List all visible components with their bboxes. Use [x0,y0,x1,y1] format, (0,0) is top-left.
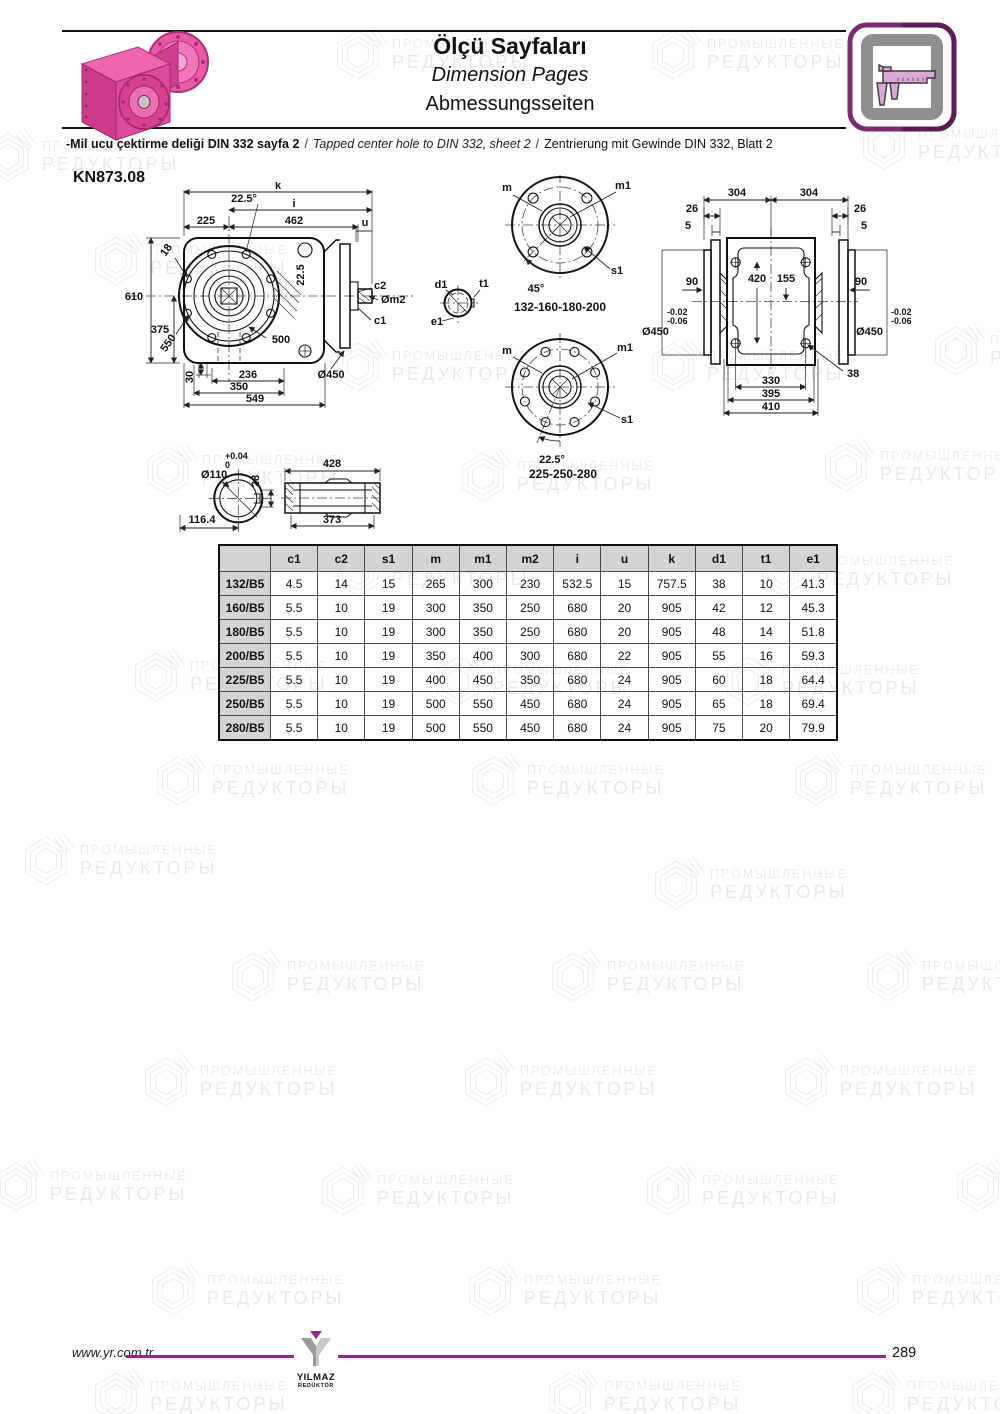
watermark: ПРОМЫШЛЕННЫЕРЕДУКТОРЫ [462,1262,662,1320]
table-cell: 45.3 [790,596,837,620]
flange-views-drawing: m m1 s1 45° 132-160-180-200 d1 t1 e1 [420,175,670,487]
label-m: m [502,345,512,357]
dim-450-right: Ø450 [856,326,883,338]
table-cell: 350 [459,596,506,620]
watermark-hexagon-icon [88,1368,144,1414]
watermark: ПРОМЫШЛЕННЫЕРЕДУКТОРЫ [818,438,1000,496]
watermark-line2: РЕДУКТОРЫ [207,1288,345,1309]
watermark-line1: ПРОМЫШЛЕННЫЕ [150,1379,288,1393]
label-m1: m1 [617,342,633,354]
gearbox-photo [58,22,218,150]
dim-i: i [292,198,295,210]
table-cell: 16 [743,644,790,668]
watermark-text: ПРОМЫШЛЕННЫЕРЕДУКТОРЫ [527,763,665,798]
table-cell: 680 [554,716,601,741]
watermark-line1: ПРОМЫШЛЕННЫЕ [520,1064,658,1078]
dim-28: 28 [250,475,262,487]
note-turkish: -Mil ucu çektirme deliği DIN 332 sayfa 2 [66,137,299,151]
column-header: s1 [365,545,412,572]
watermark-text: ПРОМЫШЛЕННЫЕРЕДУКТОРЫ [880,449,1000,484]
note-english: Tapped center hole to DIN 332, sheet 2 [313,137,531,151]
watermark-line2: РЕДУКТОРЫ [212,778,350,799]
table-cell: 19 [365,644,412,668]
table-cell: 905 [648,596,695,620]
column-header: i [554,545,601,572]
watermark-text: ПРОМЫШЛЕННЫЕРЕДУКТОРЫ [212,763,350,798]
column-header: d1 [695,545,742,572]
flange-caption-large: 225-250-280 [529,467,597,481]
watermark-text: ПРОМЫШЛЕННЫЕРЕДУКТОРЫ [710,867,848,902]
column-header: t1 [743,545,790,572]
page-number: 289 [892,1345,916,1361]
watermark-text: ПРОМЫШЛЕННЫЕРЕДУКТОРЫ [922,959,1000,994]
watermark-hexagon-icon [0,1158,44,1216]
table-cell: 60 [695,668,742,692]
watermark-text: ПРОМЫШЛЕННЫЕРЕДУКТОРЫ [912,1273,1000,1308]
watermark-hexagon-icon [0,128,36,186]
row-label: 180/B5 [219,620,271,644]
table-cell: 55 [695,644,742,668]
watermark-line1: ПРОМЫШЛЕННЫЕ [710,867,848,881]
tolerance-lower-left: -0.06 [667,316,688,326]
table-cell: 79.9 [790,716,837,741]
column-header: m2 [507,545,554,572]
yilmaz-logo-icon [297,1330,335,1368]
logo-subtitle: REDÜKTÖR [294,1383,338,1390]
table-cell: 5.5 [271,644,318,668]
watermark: ПРОМЫШЛЕННЫЕРЕДУКТОРЫ [778,1053,978,1111]
watermark-text: ПРОМЫШЛЕННЫЕРЕДУКТОРЫ [990,333,1000,368]
watermark-text: ПРОМЫШЛЕННЫЕРЕДУКТОРЫ [287,959,425,994]
watermark-hexagon-icon [845,1368,901,1414]
table-cell: 300 [412,620,459,644]
column-header: c2 [318,545,365,572]
watermark-text: ПРОМЫШЛЕННЫЕРЕДУКТОРЫ [607,959,745,994]
table-cell: 5.5 [271,716,318,741]
dim-k: k [275,182,282,192]
watermark-line2: РЕДУКТОРЫ [918,142,1000,163]
watermark: ПРОМЫШЛЕННЫЕРЕДУКТОРЫ [542,1368,742,1414]
flange-caption-small: 132-160-180-200 [514,300,606,314]
dim-395: 395 [762,388,780,400]
watermark-text: ПРОМЫШЛЕННЫЕРЕДУКТОРЫ [207,1273,345,1308]
table-cell: 14 [743,620,790,644]
table-cell: 265 [412,572,459,596]
label-t1: t1 [479,278,489,290]
watermark-line1: ПРОМЫШЛЕННЫЕ [287,959,425,973]
table-cell: 64.4 [790,668,837,692]
dim-450: Ø450 [318,369,345,381]
row-label: 280/B5 [219,716,271,741]
table-cell: 22 [601,644,648,668]
dim-c2: c2 [374,280,386,292]
table-cell: 5.5 [271,596,318,620]
watermark-line2: РЕДУКТОРЫ [520,1079,658,1100]
watermark-hexagon-icon [850,1262,906,1320]
dim-330: 330 [762,375,780,387]
watermark-line1: ПРОМЫШЛЕННЫЕ [840,1064,978,1078]
table-cell: 5.5 [271,668,318,692]
label-s1: s1 [611,265,623,277]
dim-38: 38 [847,368,859,380]
table-cell: 10 [743,572,790,596]
dim-373: 373 [323,514,341,526]
table-cell: 532.5 [554,572,601,596]
table-cell: 400 [412,668,459,692]
table-cell: 42 [695,596,742,620]
watermark-line2: РЕДУКТОРЫ [702,1188,840,1209]
note-separator: / [536,137,539,151]
label-m: m [502,182,512,194]
table-cell: 350 [459,620,506,644]
watermark-hexagon-icon [542,1368,598,1414]
page-title: Ölçü Sayfaları Dimension Pages Abmessung… [250,33,770,116]
watermark-text: ПРОМЫШЛЕННЫЕРЕДУКТОРЫ [604,1379,742,1414]
table-corner-cell [219,545,271,572]
table-cell: 350 [412,644,459,668]
table-cell: 75 [695,716,742,741]
watermark: ПРОМЫШЛЕННЫЕРЕДУКТОРЫ [145,1262,345,1320]
watermark-line2: РЕДУКТОРЫ [912,1288,1000,1309]
dim-304-left: 304 [728,187,747,199]
dim-450-left: Ø450 [642,326,669,338]
label-45deg: 45° [528,283,545,295]
watermark-text: ПРОМЫШЛЕННЫЕРЕДУКТОРЫ [520,1064,658,1099]
dimensions-table: c1c2s1mm1m2iukd1t1e1 132/B54.51415265300… [218,544,838,741]
table-cell: 450 [507,692,554,716]
table-cell: 59.3 [790,644,837,668]
column-header: k [648,545,695,572]
watermark-hexagon-icon [545,948,601,1006]
column-header: c1 [271,545,318,572]
watermark-hexagon-icon [462,1262,518,1320]
title-english: Dimension Pages [250,63,770,87]
table-cell: 41.3 [790,572,837,596]
logo-name: YILMAZ [294,1373,338,1383]
watermark-line1: ПРОМЫШЛЕННЫЕ [604,1379,742,1393]
watermark-text: ПРОМЫШЛЕННЫЕРЕДУКТОРЫ [840,1064,978,1099]
table-cell: 10 [318,644,365,668]
watermark-hexagon-icon [18,832,74,890]
watermark-line1: ПРОМЫШЛЕННЫЕ [524,1273,662,1287]
table-cell: 905 [648,692,695,716]
table-cell: 500 [412,716,459,741]
dim-610: 610 [125,291,143,303]
catalog-page: ПРОМЫШЛЕННЫЕРЕДУКТОРЫПРОМЫШЛЕННЫЕРЕДУКТО… [0,0,1000,1414]
watermark: ПРОМЫШЛЕННЫЕРЕДУКТОРЫ [18,832,218,890]
table-cell: 5.5 [271,692,318,716]
dim-420: 420 [748,273,766,285]
label-m1: m1 [615,180,631,192]
table-cell: 230 [507,572,554,596]
watermark-hexagon-icon [225,948,281,1006]
dim-410: 410 [762,401,780,413]
watermark-text: ПРОМЫШЛЕННЫЕРЕДУКТОРЫ [80,843,218,878]
table-cell: 69.4 [790,692,837,716]
table-cell: 550 [459,692,506,716]
table-cell: 680 [554,668,601,692]
table-cell: 19 [365,716,412,741]
table-cell: 19 [365,596,412,620]
watermark-hexagon-icon [150,752,206,810]
watermark: ПРОМЫШЛЕННЫЕРЕДУКТОРЫ [465,752,665,810]
table-cell: 24 [601,692,648,716]
watermark-line1: ПРОМЫШЛЕННЫЕ [207,1273,345,1287]
column-header: m [412,545,459,572]
table-cell: 38 [695,572,742,596]
watermark-text: ПРОМЫШЛЕННЫЕРЕДУКТОРЫ [150,1379,288,1414]
watermark-text: ПРОМЫШЛЕННЫЕРЕДУКТОРЫ [50,1169,188,1204]
table-cell: 905 [648,644,695,668]
table-cell: 450 [507,716,554,741]
watermark-line1: ПРОМЫШЛЕННЫЕ [850,763,988,777]
column-header: u [601,545,648,572]
dim-549: 549 [246,393,264,405]
table-row: 180/B55.5101930035025068020905481451.8 [219,620,837,644]
watermark-line1: ПРОМЫШЛЕННЫЕ [212,763,350,777]
footer-rule-right [338,1355,886,1358]
table-cell: 24 [601,668,648,692]
table-cell: 757.5 [648,572,695,596]
dim-236: 236 [239,369,257,381]
title-turkish: Ölçü Sayfaları [250,33,770,59]
table-cell: 20 [601,620,648,644]
watermark-line1: ПРОМЫШЛЕННЫЕ [912,1273,1000,1287]
table-row: 160/B55.5101930035025068020905421245.3 [219,596,837,620]
watermark-text: ПРОМЫШЛЕННЫЕРЕДУКТОРЫ [377,1173,515,1208]
label-e1: e1 [431,316,443,328]
watermark-line2: РЕДУКТОРЫ [907,1394,1000,1414]
dim-m2: Øm2 [381,294,405,306]
table-header-row: c1c2s1mm1m2iukd1t1e1 [219,545,837,572]
table-cell: 18 [743,668,790,692]
watermark: ПРОМЫШЛЕННЫЕРЕДУКТОРЫ [138,1053,338,1111]
watermark-line2: РЕДУКТОРЫ [850,778,988,799]
table-cell: 15 [365,572,412,596]
hollow-shaft-drawing: +0.04 0 Ø110 28 116.4 428 373 [175,445,390,537]
table-cell: 550 [459,716,506,741]
table-cell: 905 [648,716,695,741]
watermark-line2: РЕДУКТОРЫ [287,974,425,995]
watermark: ПРОМЫШЛЕННЫЕРЕДУКТОРЫ [788,752,988,810]
watermark-line2: РЕДУКТОРЫ [150,1394,288,1414]
table-cell: 15 [601,572,648,596]
table-cell: 10 [318,716,365,741]
watermark: ПРОМЫШЛЕННЫЕРЕДУКТОРЫ [315,1162,515,1220]
table-cell: 19 [365,668,412,692]
dim-u: u [362,217,369,229]
dim-18: 18 [158,242,175,259]
front-view-drawing: k 22.5° i 225 462 u 18 610 375 550 500 2… [68,182,420,424]
table-cell: 19 [365,692,412,716]
note-german: Zentrierung mit Gewinde DIN 332, Blatt 2 [544,137,773,151]
table-cell: 10 [318,620,365,644]
label-22-5deg: 22.5° [539,454,565,466]
watermark-text: ПРОМЫШЛЕННЫЕРЕДУКТОРЫ [907,1379,1000,1414]
watermark-line1: ПРОМЫШЛЕННЫЕ [990,333,1000,347]
watermark-line1: ПРОМЫШЛЕННЫЕ [907,1379,1000,1393]
watermark-line2: РЕДУКТОРЫ [50,1184,188,1205]
watermark-line2: РЕДУКТОРЫ [607,974,745,995]
watermark-line1: ПРОМЫШЛЕННЫЕ [607,959,745,973]
website-url: www.yr.com.tr [72,1345,153,1360]
table-cell: 14 [318,572,365,596]
dim-116-4: 116.4 [189,514,217,526]
watermark-line2: РЕДУКТОРЫ [880,464,1000,485]
table-cell: 10 [318,668,365,692]
watermark-line2: РЕДУКТОРЫ [527,778,665,799]
dim-225: 225 [197,215,215,227]
table-cell: 48 [695,620,742,644]
dim-22-5: 22.5 [295,264,307,285]
din-note: -Mil ucu çektirme deliği DIN 332 sayfa 2… [66,137,773,151]
table-cell: 680 [554,620,601,644]
table-row: 280/B55.5101950055045068024905752079.9 [219,716,837,741]
watermark-line2: РЕДУКТОРЫ [80,858,218,879]
watermark-hexagon-icon [138,1053,194,1111]
table-cell: 400 [459,644,506,668]
watermark-text: ПРОМЫШЛЕННЫЕРЕДУКТОРЫ [850,763,988,798]
company-logo: YILMAZ REDÜKTÖR [294,1330,338,1390]
table-cell: 680 [554,644,601,668]
table-cell: 51.8 [790,620,837,644]
table-cell: 10 [318,692,365,716]
watermark: ПРОМЫШЛЕННЫЕРЕДУКТОРЫ [88,1368,288,1414]
table-cell: 300 [459,572,506,596]
label-s1: s1 [621,414,633,426]
watermark-hexagon-icon [128,648,184,706]
watermark: ПРОМЫШЛЕННЫЕРЕДУКТОРЫ [845,1368,1000,1414]
watermark: ПРОМЫШЛЕННЫЕРЕДУКТОРЫ [545,948,745,1006]
watermark-hexagon-icon [860,948,916,1006]
watermark-hexagon-icon [465,752,521,810]
watermark-hexagon-icon [788,752,844,810]
table-cell: 18 [743,692,790,716]
watermark-line1: ПРОМЫШЛЕННЫЕ [377,1173,515,1187]
table-cell: 5.5 [271,620,318,644]
dim-428: 428 [323,458,341,470]
table-cell: 680 [554,596,601,620]
watermark-hexagon-icon [458,1053,514,1111]
table-cell: 19 [365,620,412,644]
watermark-line1: ПРОМЫШЛЕННЫЕ [200,1064,338,1078]
dim-26-left: 26 [686,203,698,215]
table-cell: 905 [648,668,695,692]
column-header: m1 [459,545,506,572]
dim-90-left: 90 [686,276,698,288]
watermark-line1: ПРОМЫШЛЕННЫЕ [50,1169,188,1183]
table-cell: 300 [412,596,459,620]
watermark-hexagon-icon [315,1162,371,1220]
dim-90-right: 90 [855,276,867,288]
watermark-line2: РЕДУКТОРЫ [524,1288,662,1309]
watermark: ПРОМЫШЛЕННЫЕРЕДУКТОРЫ [225,948,425,1006]
watermark: ПРОМЫШЛЕННЫЕРЕДУКТОРЫ [860,948,1000,1006]
table-cell: 350 [507,668,554,692]
title-german: Abmessungsseiten [250,92,770,116]
table-cell: 20 [743,716,790,741]
note-separator: / [304,137,307,151]
watermark-hexagon-icon [950,1158,1000,1216]
table-cell: 250 [507,596,554,620]
table-cell: 65 [695,692,742,716]
table-cell: 12 [743,596,790,620]
dim-5-left: 5 [685,220,691,232]
table-body: 132/B54.51415265300230532.515757.5381041… [219,572,837,741]
table-row: 132/B54.51415265300230532.515757.5381041… [219,572,837,596]
watermark: ПРОМЫШЛЕННЫЕРЕДУКТОРЫ [640,1162,840,1220]
row-label: 250/B5 [219,692,271,716]
watermark-line1: ПРОМЫШЛЕННЫЕ [922,959,1000,973]
watermark-hexagon-icon [778,1053,834,1111]
watermark-hexagon-icon [145,1262,201,1320]
watermark: ПРОМЫШЛЕННЫЕРЕДУКТОРЫ [150,752,350,810]
dim-350: 350 [230,381,248,393]
watermark-line1: ПРОМЫШЛЕННЫЕ [702,1173,840,1187]
watermark-text: ПРОМЫШЛЕННЫЕРЕДУКТОРЫ [524,1273,662,1308]
table-cell: 10 [318,596,365,620]
watermark: ПРОМЫШЛЕННЫЕРЕДУКТОРЫ [950,1158,1000,1216]
watermark-line2: РЕДУКТОРЫ [922,974,1000,995]
table-cell: 4.5 [271,572,318,596]
row-label: 132/B5 [219,572,271,596]
table-cell: 905 [648,620,695,644]
watermark-line2: РЕДУКТОРЫ [990,348,1000,369]
table-cell: 450 [459,668,506,692]
label-d1: d1 [435,279,448,291]
watermark-line2: РЕДУКТОРЫ [377,1188,515,1209]
dim-5-right: 5 [861,220,867,232]
table-cell: 24 [601,716,648,741]
dim-c1: c1 [374,315,386,327]
watermark-hexagon-icon [818,438,874,496]
table-cell: 300 [507,644,554,668]
watermark-line1: ПРОМЫШЛЕННЫЕ [527,763,665,777]
dim-26-right: 26 [854,203,866,215]
table-row: 250/B55.5101950055045068024905651869.4 [219,692,837,716]
watermark-line2: РЕДУКТОРЫ [840,1079,978,1100]
column-header: e1 [790,545,837,572]
caliper-icon [846,21,958,133]
watermark-line2: РЕДУКТОРЫ [200,1079,338,1100]
dim-155: 155 [777,273,795,285]
table-cell: 500 [412,692,459,716]
row-label: 225/B5 [219,668,271,692]
watermark-line1: ПРОМЫШЛЕННЫЕ [80,843,218,857]
top-view-drawing: 304 304 26 5 26 5 90 90 420 155 -0.02 -0… [640,178,970,424]
dim-304-right: 304 [800,187,819,199]
watermark: ПРОМЫШЛЕННЫЕРЕДУКТОРЫ [850,1262,1000,1320]
dim-462: 462 [285,215,303,227]
watermark-line2: РЕДУКТОРЫ [710,882,848,903]
dim-110: Ø110 [201,469,227,481]
watermark-hexagon-icon [648,856,704,914]
table-row: 200/B55.5101935040030068022905551659.3 [219,644,837,668]
dim-30: 30 [184,371,196,383]
watermark: ПРОМЫШЛЕННЫЕРЕДУКТОРЫ [458,1053,658,1111]
tolerance-lower-right: -0.06 [891,316,912,326]
dim-angle-top: 22.5° [231,193,257,205]
row-label: 200/B5 [219,644,271,668]
watermark: ПРОМЫШЛЕННЫЕРЕДУКТОРЫ [0,1158,188,1216]
watermark-line1: ПРОМЫШЛЕННЫЕ [880,449,1000,463]
table-cell: 680 [554,692,601,716]
row-label: 160/B5 [219,596,271,620]
watermark: ПРОМЫШЛЕННЫЕРЕДУКТОРЫ [648,856,848,914]
watermark-text: ПРОМЫШЛЕННЫЕРЕДУКТОРЫ [702,1173,840,1208]
watermark-text: ПРОМЫШЛЕННЫЕРЕДУКТОРЫ [200,1064,338,1099]
watermark-hexagon-icon [640,1162,696,1220]
